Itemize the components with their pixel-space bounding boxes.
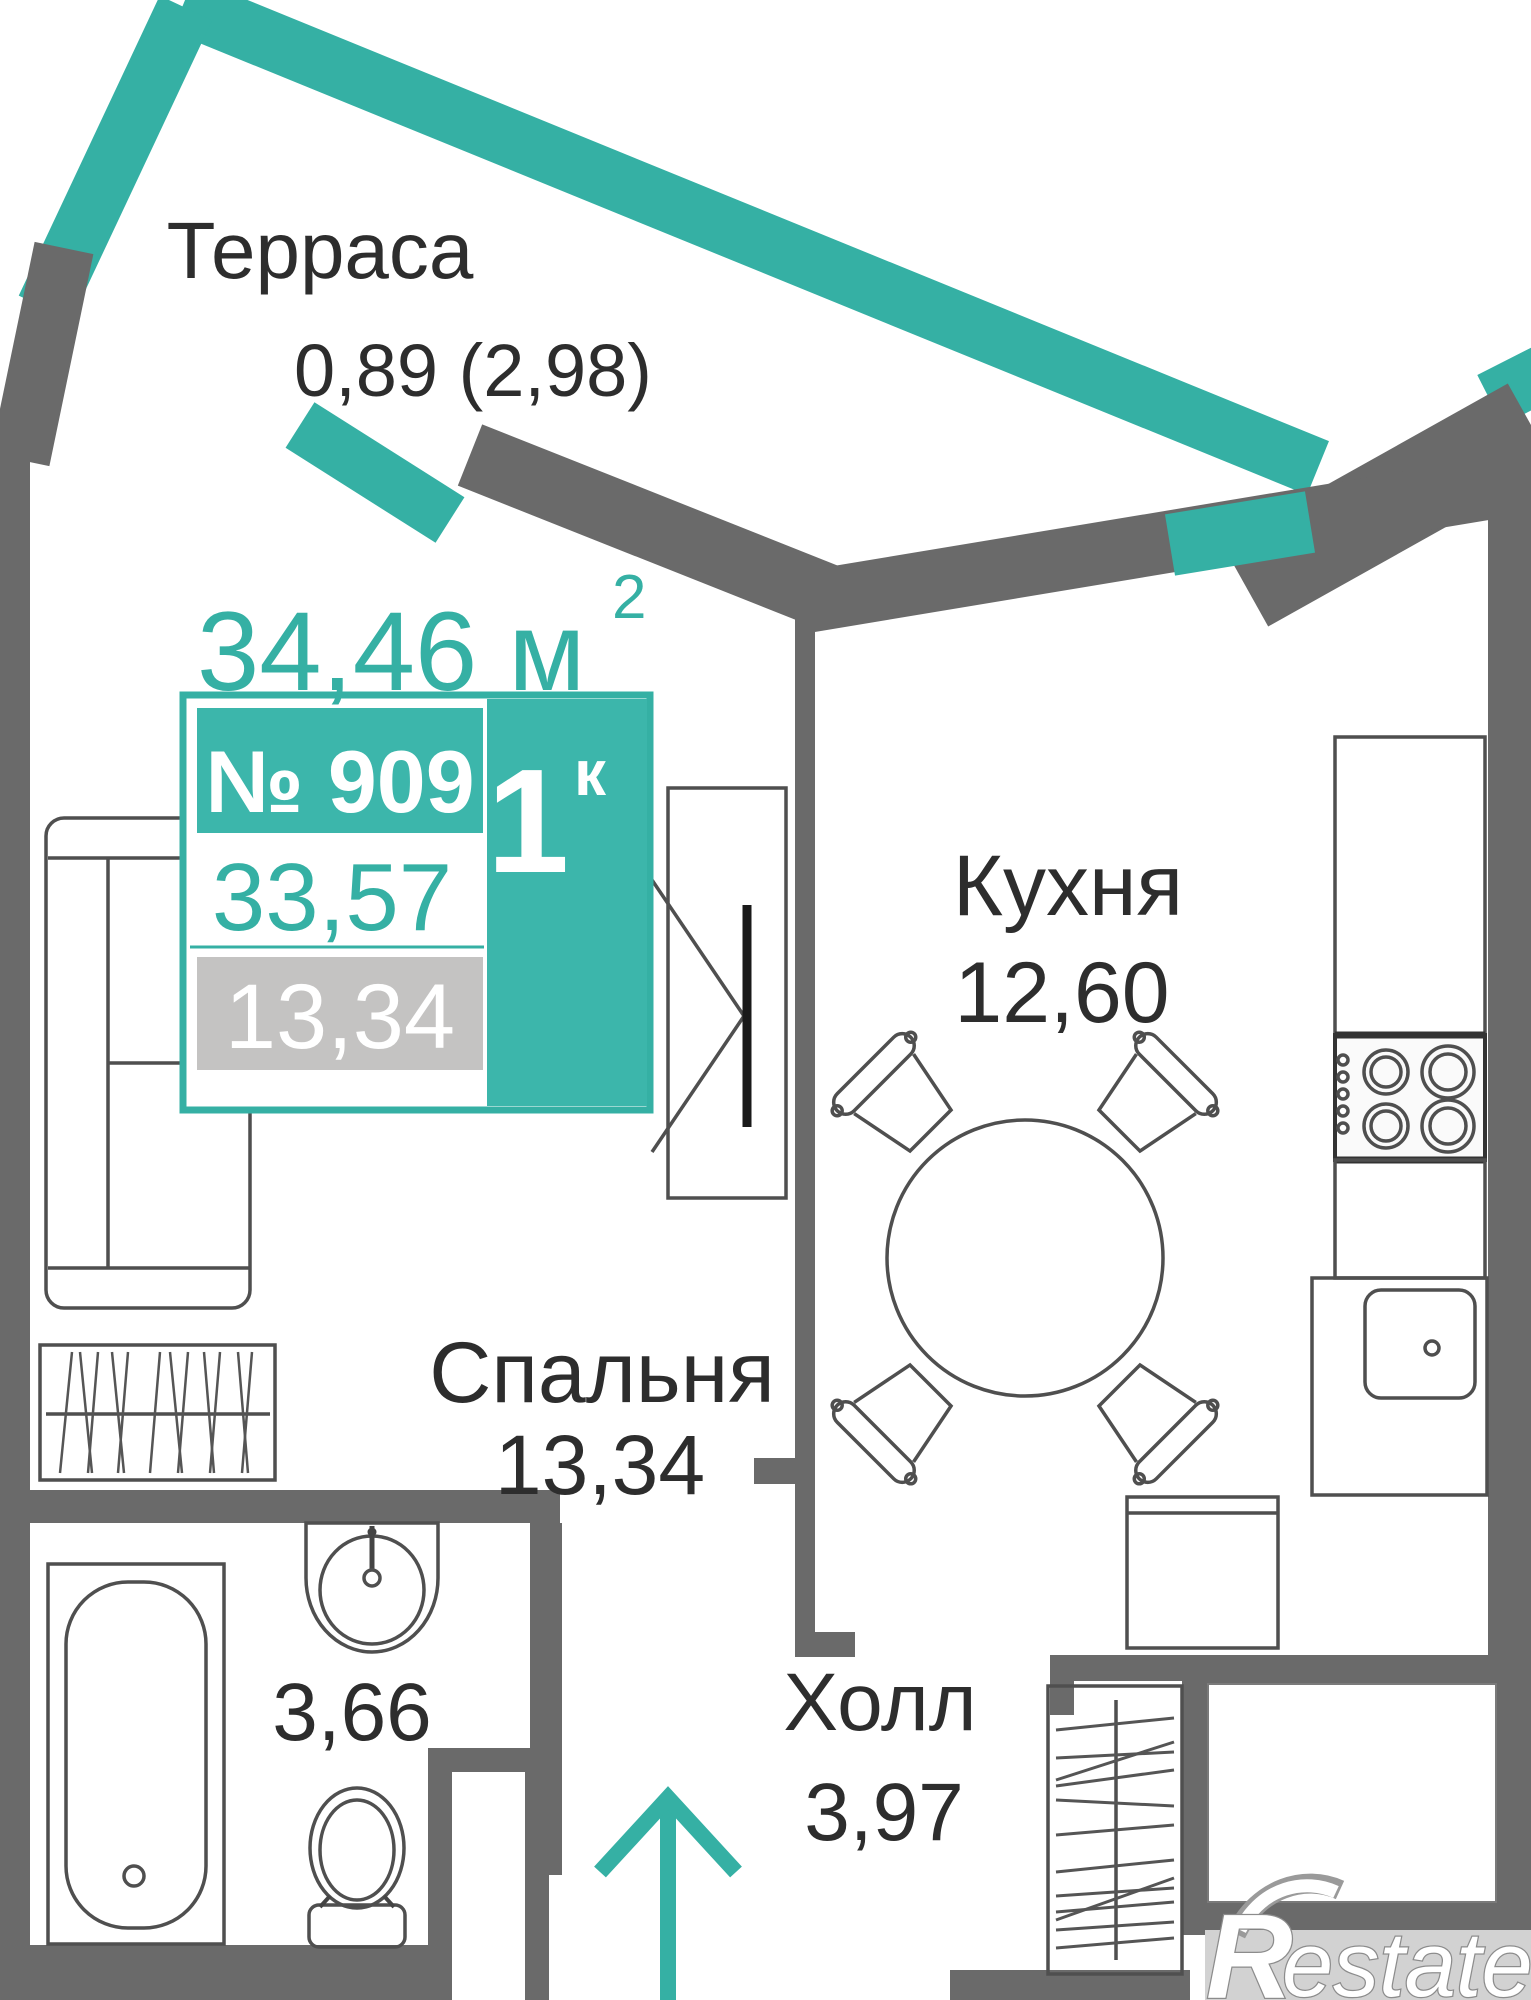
unit-rooms-sup: к	[574, 737, 607, 809]
wall-left	[0, 450, 30, 2000]
hall-area: 3,97	[804, 1767, 964, 1858]
watermark-logo-r: R	[1206, 1890, 1293, 2000]
stairwell-space	[1208, 1684, 1496, 1902]
total-area-title: 34,46 м	[197, 589, 585, 714]
wall-right	[1488, 478, 1531, 1678]
total-area-sup: 2	[612, 563, 646, 632]
bedroom-area: 13,34	[495, 1418, 705, 1512]
bedroom-label: Спальня	[429, 1325, 775, 1421]
hall-label: Холл	[783, 1657, 976, 1748]
bathroom-area: 3,66	[272, 1667, 432, 1758]
watermark-logo-text: estate	[1282, 1914, 1531, 2000]
wall-bedroom-kitchen	[795, 560, 815, 1657]
entry-door-opening	[452, 1772, 525, 2000]
floor-plan: № 909 1 к 33,57 13,34 Терраса 0,89 (2,98…	[0, 0, 1531, 2000]
unit-number: № 909	[205, 732, 474, 831]
stove-icon	[1335, 1035, 1485, 1160]
wall-bottom	[0, 1945, 430, 2000]
wall-bathroom-top	[30, 1490, 560, 1523]
unit-area-total: 33,57	[212, 844, 452, 951]
kitchen-label: Кухня	[953, 838, 1183, 934]
terrace-label: Терраса	[167, 206, 474, 295]
unit-card: № 909 1 к 33,57 13,34	[183, 695, 650, 1110]
unit-rooms: 1	[487, 739, 569, 904]
terrace-area: 0,89 (2,98)	[294, 329, 652, 412]
unit-area-room: 13,34	[225, 966, 455, 1068]
kitchen-area: 12,60	[954, 945, 1169, 1041]
